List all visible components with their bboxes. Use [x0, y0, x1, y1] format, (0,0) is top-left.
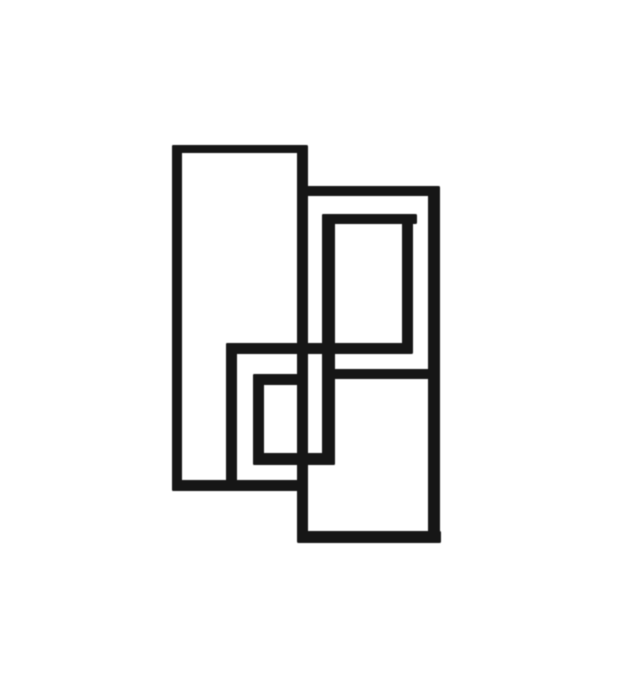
- left-rect-bottom-edge: [172, 480, 305, 491]
- upper-right-rect-top-edge: [300, 186, 438, 196]
- lower-right-rect-top-edge: [329, 369, 440, 379]
- abstract-rectangles-artwork: [0, 0, 625, 688]
- inner-upper-rect-right-edge: [402, 214, 413, 354]
- left-rect-left-edge: [172, 145, 182, 491]
- central-vertical-line: [297, 145, 308, 543]
- left-rect-top-edge: [172, 145, 306, 153]
- small-center-rect-left-edge: [253, 374, 264, 465]
- artwork-canvas: [0, 0, 625, 688]
- page-background: [0, 0, 625, 688]
- middle-horizontal-bar: [226, 343, 411, 354]
- center-rect-left-edge: [226, 343, 237, 491]
- segment-group: [172, 145, 441, 543]
- inner-left-vertical-line: [322, 214, 335, 465]
- lower-right-rect-bottom-edge: [298, 531, 441, 543]
- right-vertical-line: [428, 186, 440, 543]
